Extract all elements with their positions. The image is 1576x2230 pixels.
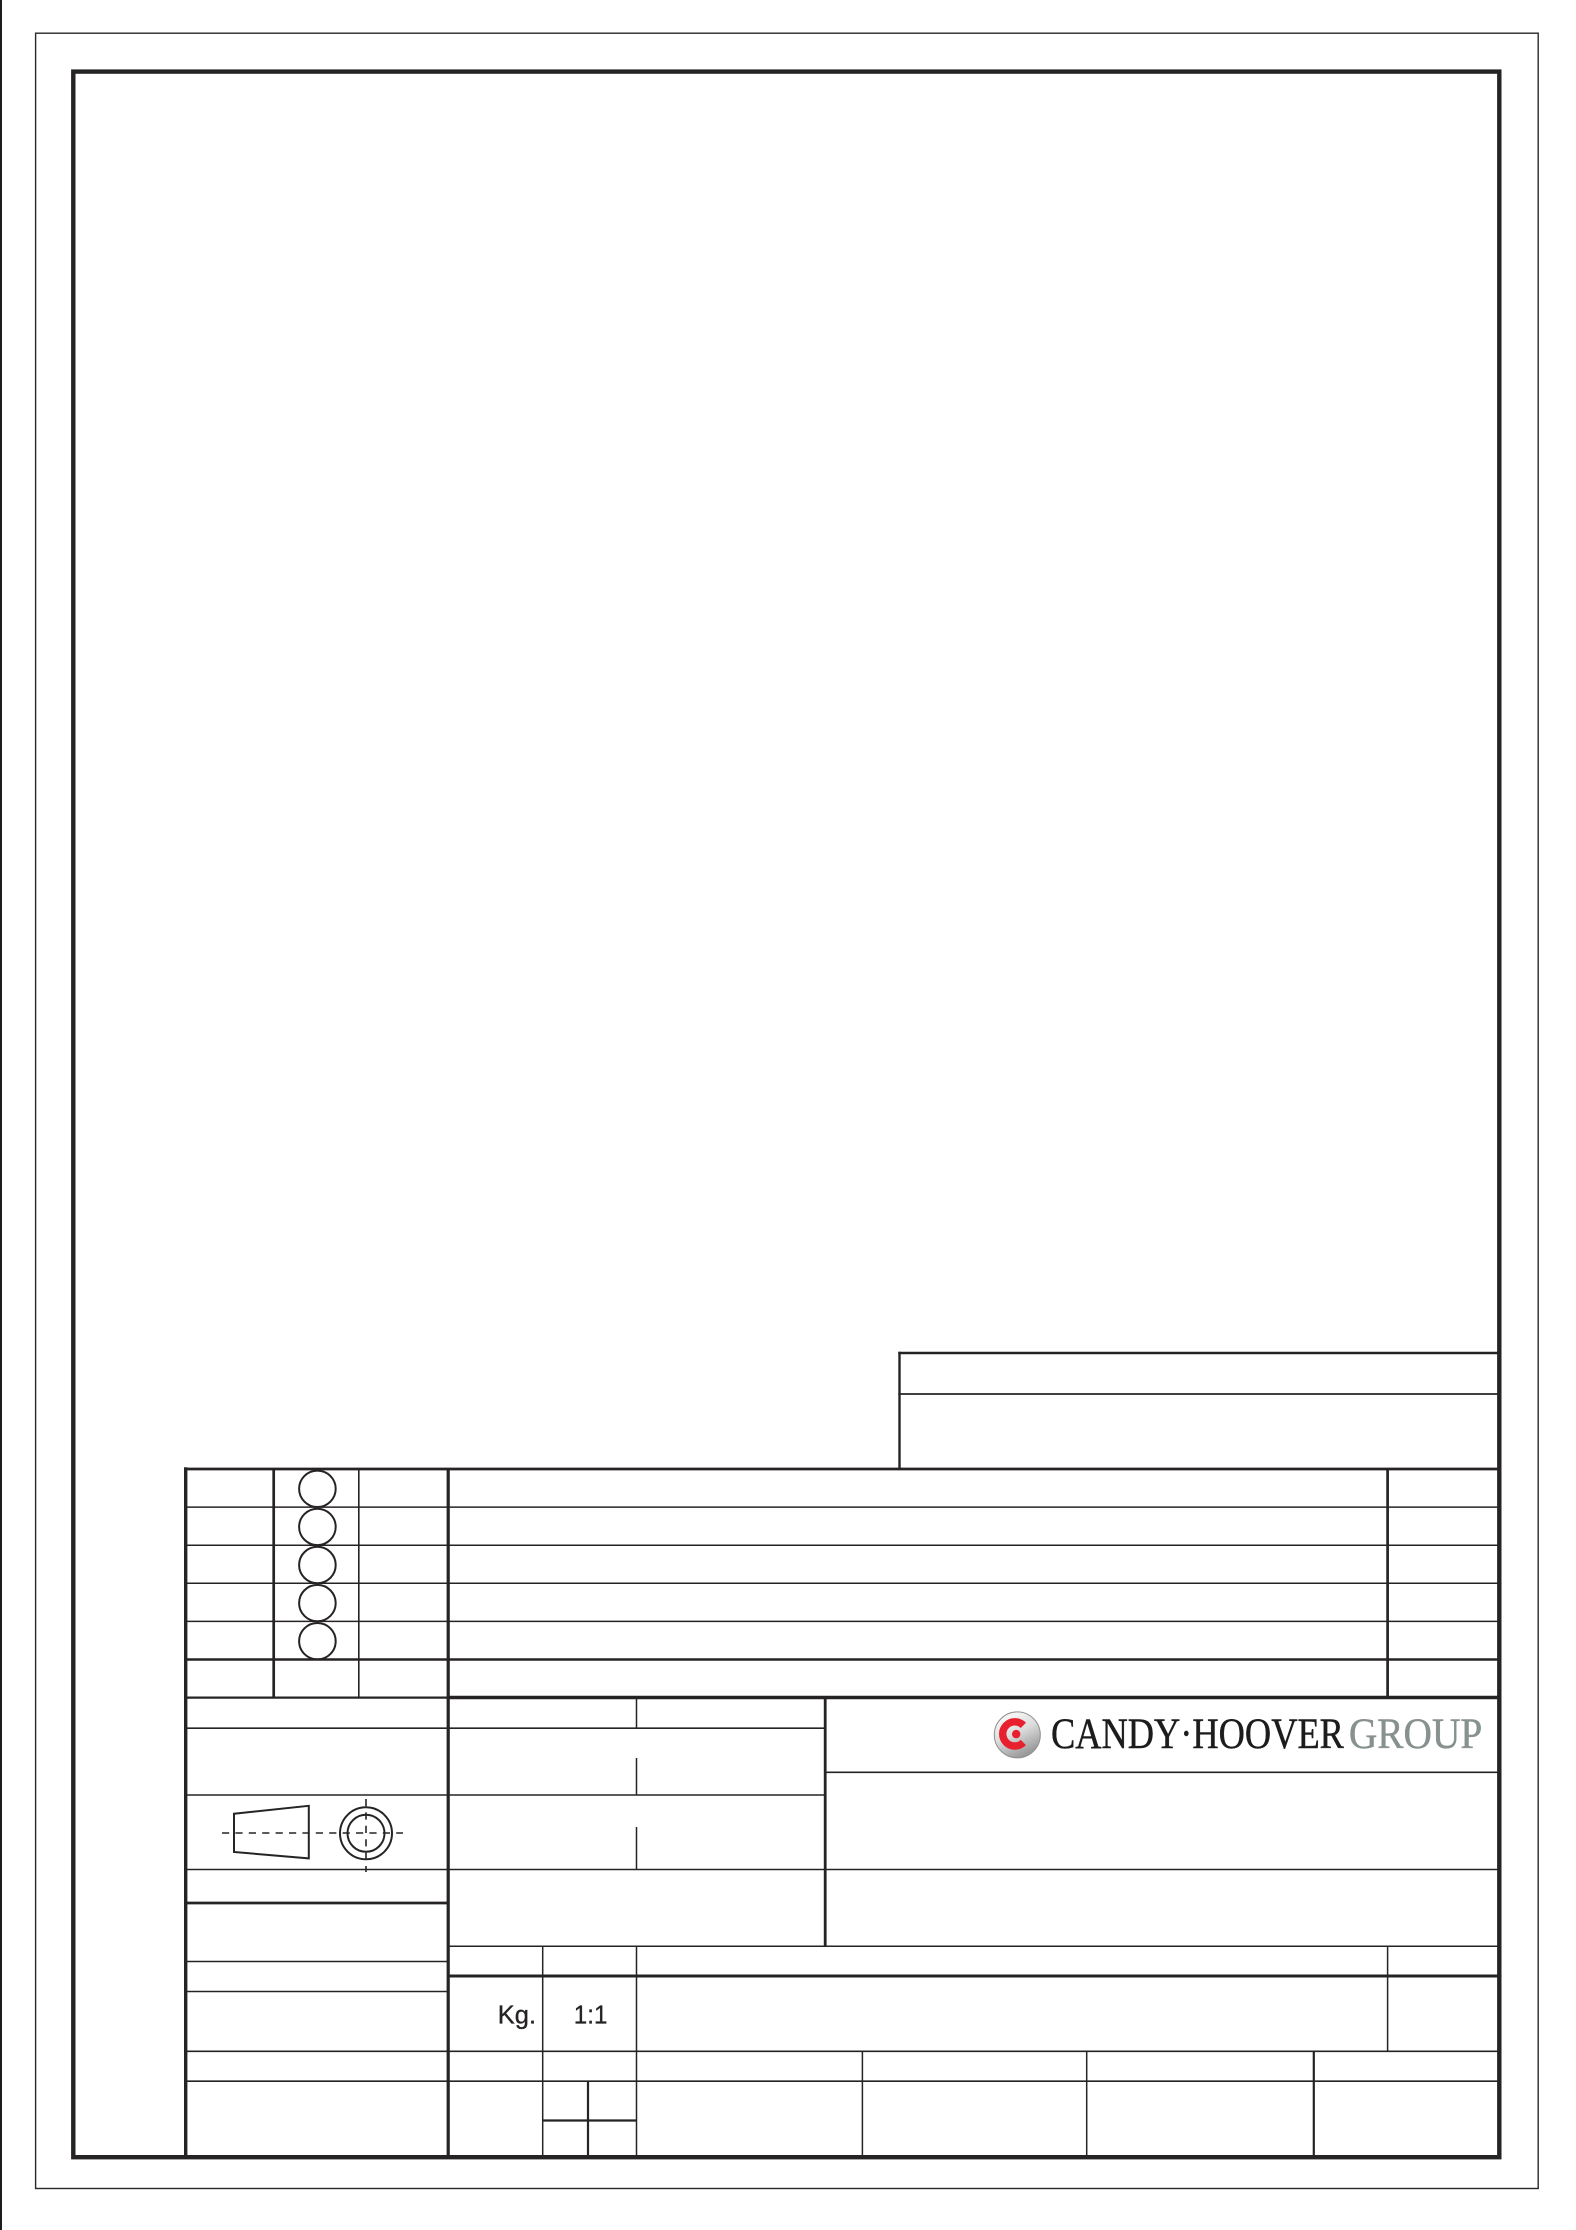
svg-text:Kg.: Kg. — [498, 2001, 536, 2029]
svg-text:CANDY·HOOVER: CANDY·HOOVER — [1051, 1710, 1344, 1758]
svg-text:1:1: 1:1 — [574, 2001, 608, 2030]
svg-text:GROUP: GROUP — [1349, 1709, 1482, 1757]
